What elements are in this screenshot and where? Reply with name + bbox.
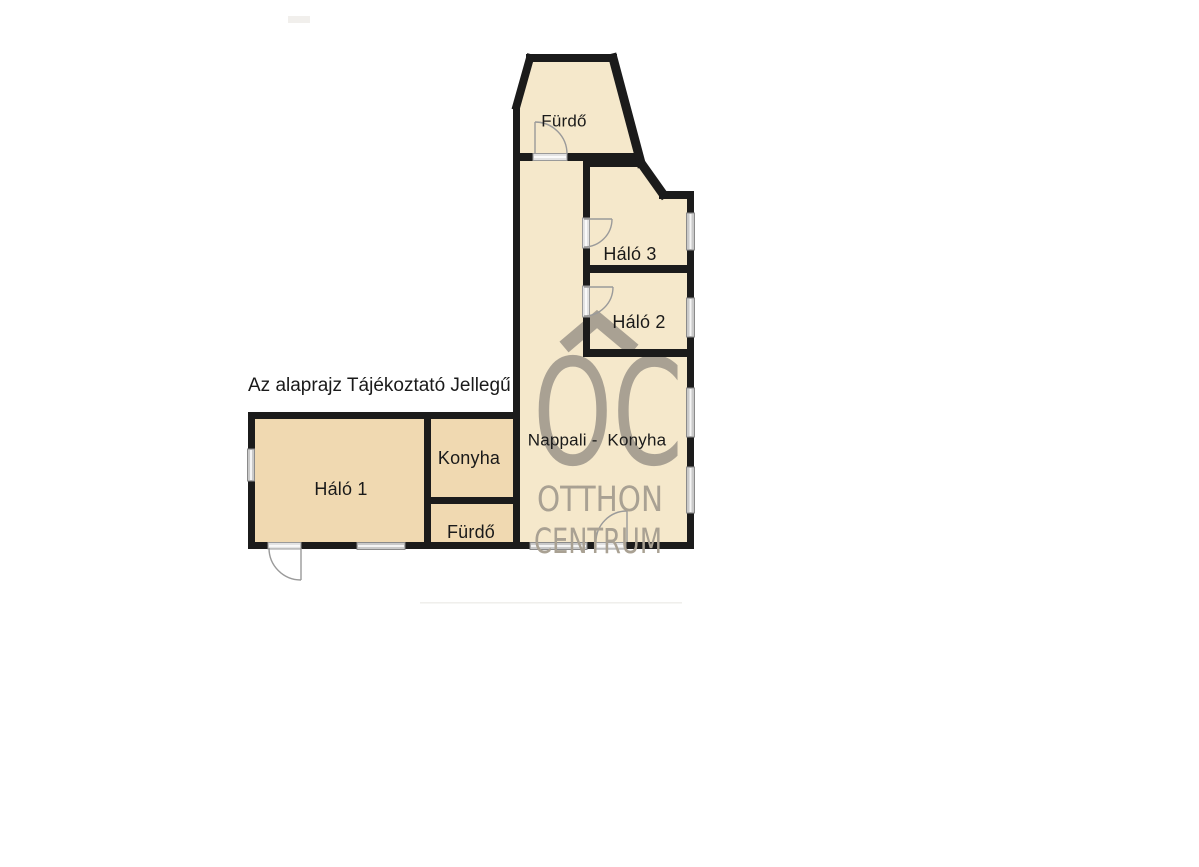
window-nappali-upper (687, 388, 695, 437)
door-halo1-entry (269, 548, 301, 580)
threshold-furdo-top (533, 154, 567, 161)
room-label-halo-1: Háló 1 (314, 480, 367, 498)
room-label-furdo-left: Fürdő (447, 523, 495, 541)
room-label-furdo-top: Fürdő (541, 113, 586, 130)
room-label-halo-3: Háló 3 (603, 245, 656, 263)
floorplan-page: OC (0, 0, 1199, 867)
window-halo1-bottom (357, 543, 405, 550)
threshold-halo3 (583, 218, 590, 248)
window-halo3 (687, 213, 695, 250)
window-nappali-lower (687, 467, 695, 513)
room-label-nappali-konyha: Nappali - Konyha (528, 432, 667, 449)
watermark-line2: CENTRUM (534, 522, 662, 562)
disclaimer-text: Az alaprajz Tájékoztató Jellegű (248, 376, 511, 397)
watermark-logo: OC (533, 319, 683, 499)
room-label-konyha: Konyha (438, 449, 500, 467)
window-halo1-left (248, 449, 255, 481)
watermark-line1: OTTHON (537, 480, 663, 520)
threshold-halo1-entry (268, 543, 301, 550)
window-halo2 (687, 298, 695, 337)
room-label-halo-2: Háló 2 (612, 313, 665, 331)
threshold-halo2 (583, 286, 590, 317)
